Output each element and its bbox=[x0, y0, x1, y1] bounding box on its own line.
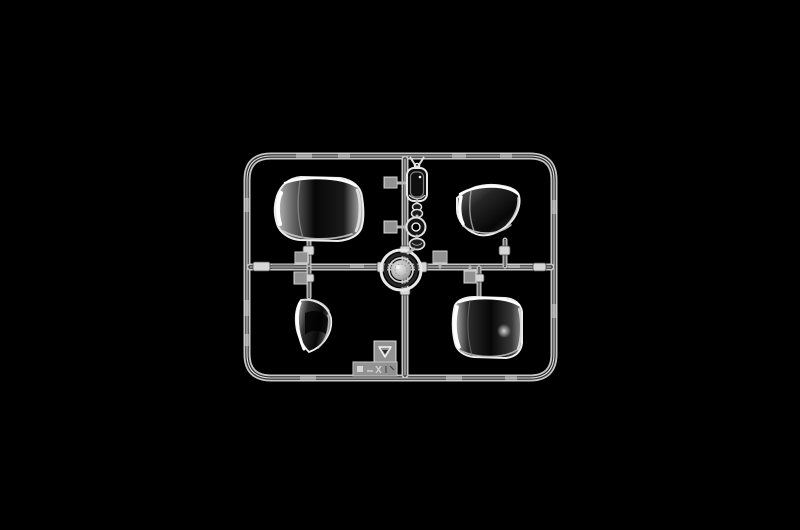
part-windscreen-large bbox=[275, 177, 364, 241]
ejector-pad bbox=[433, 251, 447, 263]
ejector-pad bbox=[384, 221, 397, 233]
ejector-pad bbox=[464, 271, 476, 283]
runner-joint-right bbox=[533, 263, 546, 271]
ejector-pad bbox=[295, 252, 308, 263]
ejector-pad bbox=[294, 272, 307, 284]
runner-joint-left bbox=[253, 262, 270, 271]
sprue-illustration bbox=[0, 0, 800, 530]
part-rear-window bbox=[453, 297, 522, 358]
part-lens-rect bbox=[407, 168, 427, 201]
recycle-stamp bbox=[374, 341, 396, 362]
code-stamp bbox=[353, 362, 397, 376]
sprue-photo bbox=[0, 0, 800, 530]
embossed-mark bbox=[357, 366, 363, 372]
part-lens-oval bbox=[410, 239, 425, 250]
part-lens-donut bbox=[407, 218, 426, 237]
ejector-pad bbox=[384, 177, 397, 188]
